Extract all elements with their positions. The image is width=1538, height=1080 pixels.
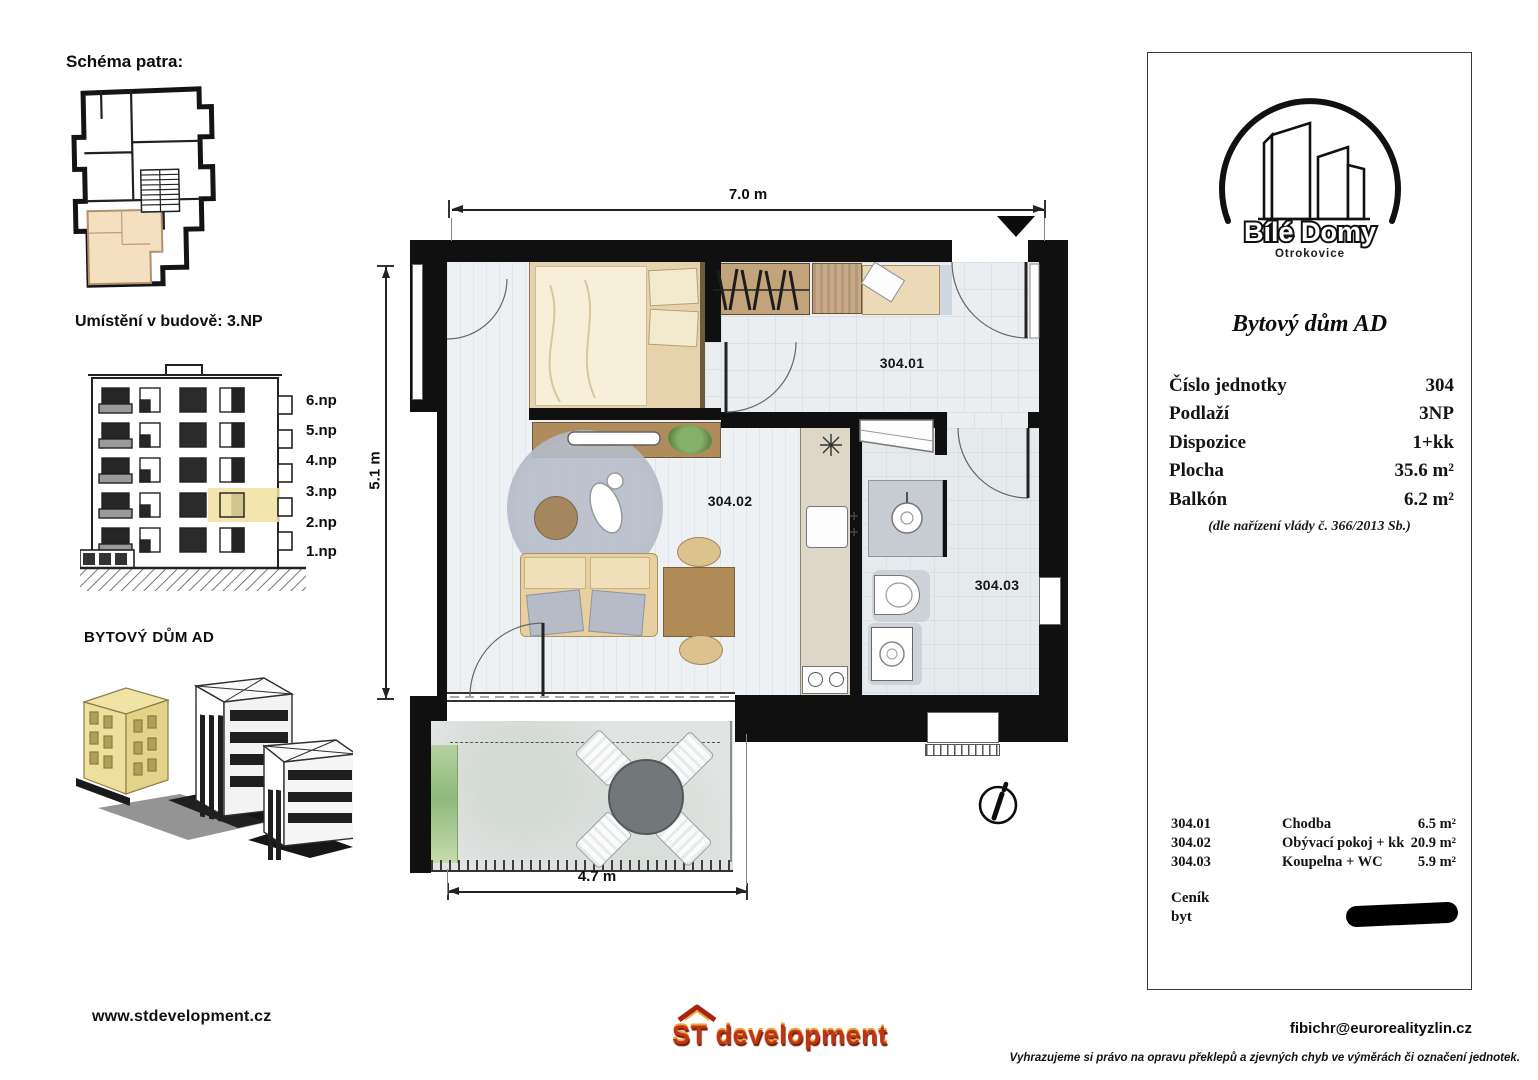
- dim-line-top: [452, 209, 1044, 211]
- floor-schema-drawing: [63, 82, 227, 288]
- price-sublabel: byt: [1171, 908, 1209, 927]
- floor-label-1np: 1.np: [306, 543, 356, 560]
- tv: [568, 432, 660, 445]
- window-column-4: [220, 388, 244, 552]
- bile-domy-logo: Bílé Domy Otrokovice: [1214, 81, 1406, 263]
- detail-row: Číslo jednotky 304: [1169, 375, 1454, 403]
- balcony: [410, 700, 733, 873]
- disclaimer-text: Vyhrazujeme si právo na opravu překlepů …: [1010, 1052, 1520, 1064]
- highlighted-building-3d: [84, 688, 168, 794]
- room-label-304-03: 304.03: [967, 577, 1027, 593]
- dim-line-left: [385, 266, 387, 700]
- developer-logo: ST development: [672, 1020, 888, 1051]
- room-list-row: 304.01 Chodba 6.5 m²: [1171, 816, 1456, 835]
- balcony-edge-line: [730, 721, 732, 862]
- ground-hatch: [80, 569, 306, 591]
- building-elevation-drawing: [80, 360, 306, 594]
- dim-label-balcony: 4.7 m: [565, 868, 629, 885]
- website-link[interactable]: www.stdevelopment.cz: [92, 1008, 271, 1026]
- room-list-row: 304.02 Obývací pokoj + kk 20.9 m²: [1171, 835, 1456, 854]
- dim-label-width: 7.0 m: [718, 186, 778, 203]
- floorplan-datasheet: Schéma patra: Umístění v budově: 3.NP: [0, 0, 1538, 1080]
- floor-label-3np: 3.np: [306, 483, 356, 500]
- contact-email[interactable]: fibichr@eurorealityzlin.cz: [1290, 1020, 1472, 1037]
- buildings-3d-render: [68, 650, 353, 860]
- hob-star-icon: [820, 434, 842, 456]
- highlighted-unit: [88, 210, 164, 285]
- detail-row: Plocha 35.6 m²: [1169, 460, 1454, 488]
- room-list-row: 304.03 Koupelna + WC 5.9 m²: [1171, 854, 1456, 873]
- washer-drum: [880, 642, 904, 666]
- shower: [860, 420, 933, 452]
- detail-row: Podlaží 3NP: [1169, 403, 1454, 431]
- dim-line-balcony: [448, 891, 747, 893]
- logo-city: Otrokovice: [1275, 248, 1345, 260]
- detail-row: Dispozice 1+kk: [1169, 432, 1454, 460]
- detail-row: Balkón 6.2 m²: [1169, 489, 1454, 517]
- logo-name: Bílé Domy: [1244, 217, 1376, 247]
- stair-hatch: [141, 169, 180, 212]
- regulation-note: (dle nařízení vlády č. 366/2013 Sb.): [1148, 519, 1471, 535]
- floor-label-2np: 2.np: [306, 514, 356, 531]
- window-column-3: [180, 388, 206, 552]
- redacted-price: [1346, 902, 1459, 928]
- dim-label-height: 5.1 m: [367, 443, 384, 499]
- floor-label-4np: 4.np: [306, 452, 356, 469]
- duvet-lines: [550, 280, 595, 402]
- logo-buildings: [1264, 123, 1364, 219]
- room-label-304-01: 304.01: [872, 355, 932, 371]
- balcony-planting: [431, 745, 458, 863]
- white-building-low: [264, 740, 353, 860]
- floor-label-6np: 6.np: [306, 392, 356, 409]
- french-balcony-rail: [925, 744, 1000, 756]
- location-title: Umístění v budově: 3.NP: [75, 313, 263, 331]
- door-swing-arcs: [447, 262, 1028, 696]
- panel-title: Bytový dům AD: [1148, 311, 1471, 338]
- toilet-seat: [886, 583, 912, 607]
- floor-label-5np: 5.np: [306, 422, 356, 439]
- vanity-sink: [892, 492, 922, 533]
- building-3d-title: BYTOVÝ DŮM AD: [84, 629, 214, 646]
- balcony-wall-left: [410, 742, 431, 873]
- floor-plan: 304.01 304.02 304.03: [410, 240, 1068, 742]
- balcony-table: [608, 759, 684, 835]
- price-block: Ceník byt: [1171, 889, 1209, 927]
- faucet-marks: [850, 512, 858, 536]
- room-label-304-02: 304.02: [700, 493, 760, 509]
- north-indicator-icon: [976, 780, 1022, 826]
- entry-niche: [1030, 264, 1039, 338]
- plan-symbol-overlay: [410, 240, 1068, 742]
- price-label: Ceník: [1171, 889, 1209, 908]
- balcony-column: [99, 388, 132, 553]
- unit-info-panel: Bílé Domy Otrokovice Bytový dům AD Číslo…: [1147, 52, 1472, 990]
- person-figure: [584, 473, 628, 537]
- schema-title: Schéma patra:: [66, 52, 183, 72]
- entry-marker-icon: [997, 216, 1035, 237]
